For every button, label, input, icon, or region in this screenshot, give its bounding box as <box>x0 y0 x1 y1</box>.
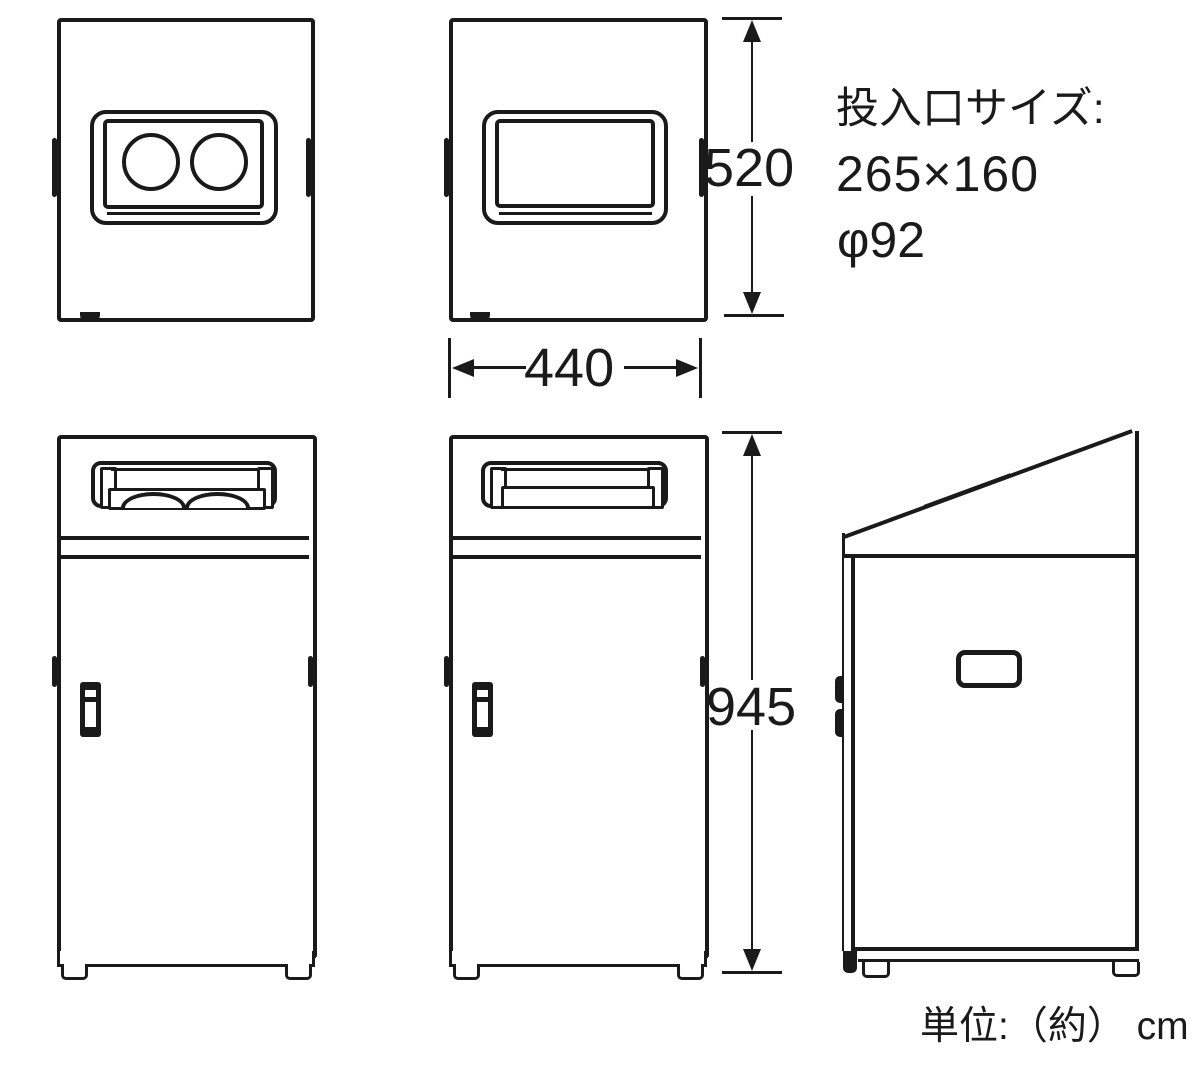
inlet-rect-size: 265×160 <box>836 147 1039 202</box>
hood-body-seam-upper <box>449 536 701 540</box>
front-base-block <box>843 951 857 973</box>
door-handle-window-bottom <box>85 702 96 727</box>
dim-945-line-upper <box>751 454 753 680</box>
inlet-plate-reveal-line <box>107 212 260 215</box>
dim-440-extension-left <box>448 338 451 398</box>
door-handle-window-bottom <box>477 702 488 727</box>
side-tab-left <box>52 138 57 197</box>
dim-440-arrow-left <box>452 359 474 377</box>
inlet-plate-reveal-line <box>499 212 652 215</box>
dim-520-label: 520 <box>704 141 794 195</box>
dim-945-line-lower <box>751 730 753 951</box>
hood-slope-line <box>843 429 1132 539</box>
base-plate <box>449 951 707 967</box>
side-door-edge-line <box>851 556 855 951</box>
inlet-size-title: 投入口サイズ: <box>836 86 1105 133</box>
diagram-canvas: 520 440 投入口サイズ: 265×160 φ92 945 <box>0 0 1200 1070</box>
hood-bottom-line <box>843 554 1139 558</box>
hood-front-edge <box>842 533 845 557</box>
foot-front <box>862 962 890 978</box>
foot-rear <box>1112 962 1140 977</box>
hinge-bump-lower <box>835 709 843 737</box>
round-inlet-hole-right <box>190 133 248 191</box>
label-holder <box>956 650 1022 688</box>
side-tab-left <box>444 138 449 197</box>
dim-520-line-upper <box>751 40 753 142</box>
slot-top-edge <box>111 468 257 471</box>
hood-slope-seam <box>924 473 1011 507</box>
dim-440-arrow-right <box>676 359 698 377</box>
base-plate <box>57 951 315 967</box>
dim-440-line-right <box>624 366 676 369</box>
foot-bump <box>80 312 100 321</box>
dim-945-arrow-down <box>743 949 761 971</box>
hinge-tab-left <box>444 656 449 687</box>
round-inlet-hole-left <box>122 133 180 191</box>
dim-440-line-left <box>474 366 526 369</box>
side-bottom-line <box>853 947 1139 951</box>
hood-body-seam-lower <box>449 555 701 559</box>
hinge-tab-left <box>52 656 57 687</box>
dim-440-label: 440 <box>524 341 614 395</box>
inlet-hole-diameter: φ92 <box>837 213 925 268</box>
side-front-outer-line <box>842 556 844 951</box>
dim-520-extension-bottom <box>724 314 784 317</box>
side-rear-edge <box>1135 431 1139 949</box>
slot-recessed-plate <box>501 486 655 509</box>
hinge-bump-upper <box>835 676 843 703</box>
hinge-tab-right <box>308 656 313 687</box>
dim-520-arrow-down <box>743 292 761 314</box>
dim-945-label: 945 <box>706 680 796 734</box>
foot-right <box>285 964 312 980</box>
rect-inlet-opening <box>495 119 655 208</box>
dim-520-arrow-up <box>743 20 761 42</box>
foot-left <box>453 964 480 980</box>
slot-top-edge <box>501 468 647 471</box>
dim-520-line-lower <box>751 196 753 294</box>
dim-945-extension-bottom <box>722 971 782 974</box>
hinge-tab-right <box>700 656 705 687</box>
foot-bump <box>470 312 490 321</box>
foot-right <box>677 964 704 980</box>
side-base-line <box>858 959 1139 962</box>
dim-440-extension-right <box>699 338 702 398</box>
hood-body-seam-upper <box>57 536 309 540</box>
side-tab-right <box>306 138 311 197</box>
unit-note: 単位:（約） cm <box>920 1006 1189 1049</box>
dim-945-arrow-up <box>743 434 761 456</box>
door-handle-window-top <box>477 690 488 697</box>
foot-left <box>61 964 88 980</box>
door-handle-window-top <box>85 690 96 697</box>
hood-body-seam-lower <box>57 555 309 559</box>
